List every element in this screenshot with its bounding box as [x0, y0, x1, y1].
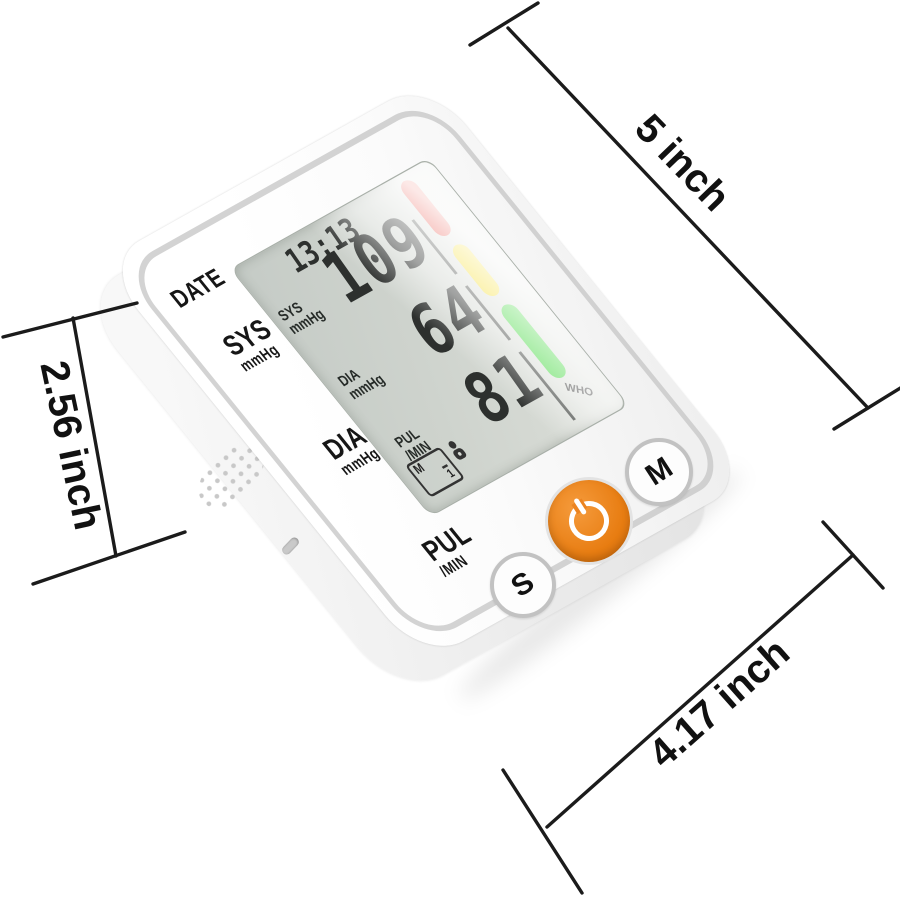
memory-button[interactable]: M — [625, 438, 693, 506]
power-button[interactable] — [548, 480, 630, 562]
dimension-width-label: 5 inch — [626, 106, 738, 220]
blood-pressure-monitor: DATE SYS mmHg DIA mmHg PUL /MIN 13:13 SY… — [100, 79, 752, 663]
set-button[interactable]: S — [490, 552, 556, 618]
memory-button-label: M — [639, 451, 678, 493]
product-photo: DATE SYS mmHg DIA mmHg PUL /MIN 13:13 SY… — [0, 0, 900, 900]
who-label: WHO — [564, 382, 593, 400]
memory-slot: 1 — [442, 464, 458, 481]
dimension-height-label: 2.56 inch — [31, 357, 110, 534]
power-icon — [561, 493, 616, 548]
set-button-label: S — [505, 565, 540, 604]
dimension-depth-label: 4.17 inch — [641, 630, 798, 776]
lcd-label-sys: SYS mmHg — [275, 294, 328, 338]
lcd-label-dia: DIA mmHg — [335, 359, 388, 403]
memory-mode: M — [411, 461, 428, 477]
